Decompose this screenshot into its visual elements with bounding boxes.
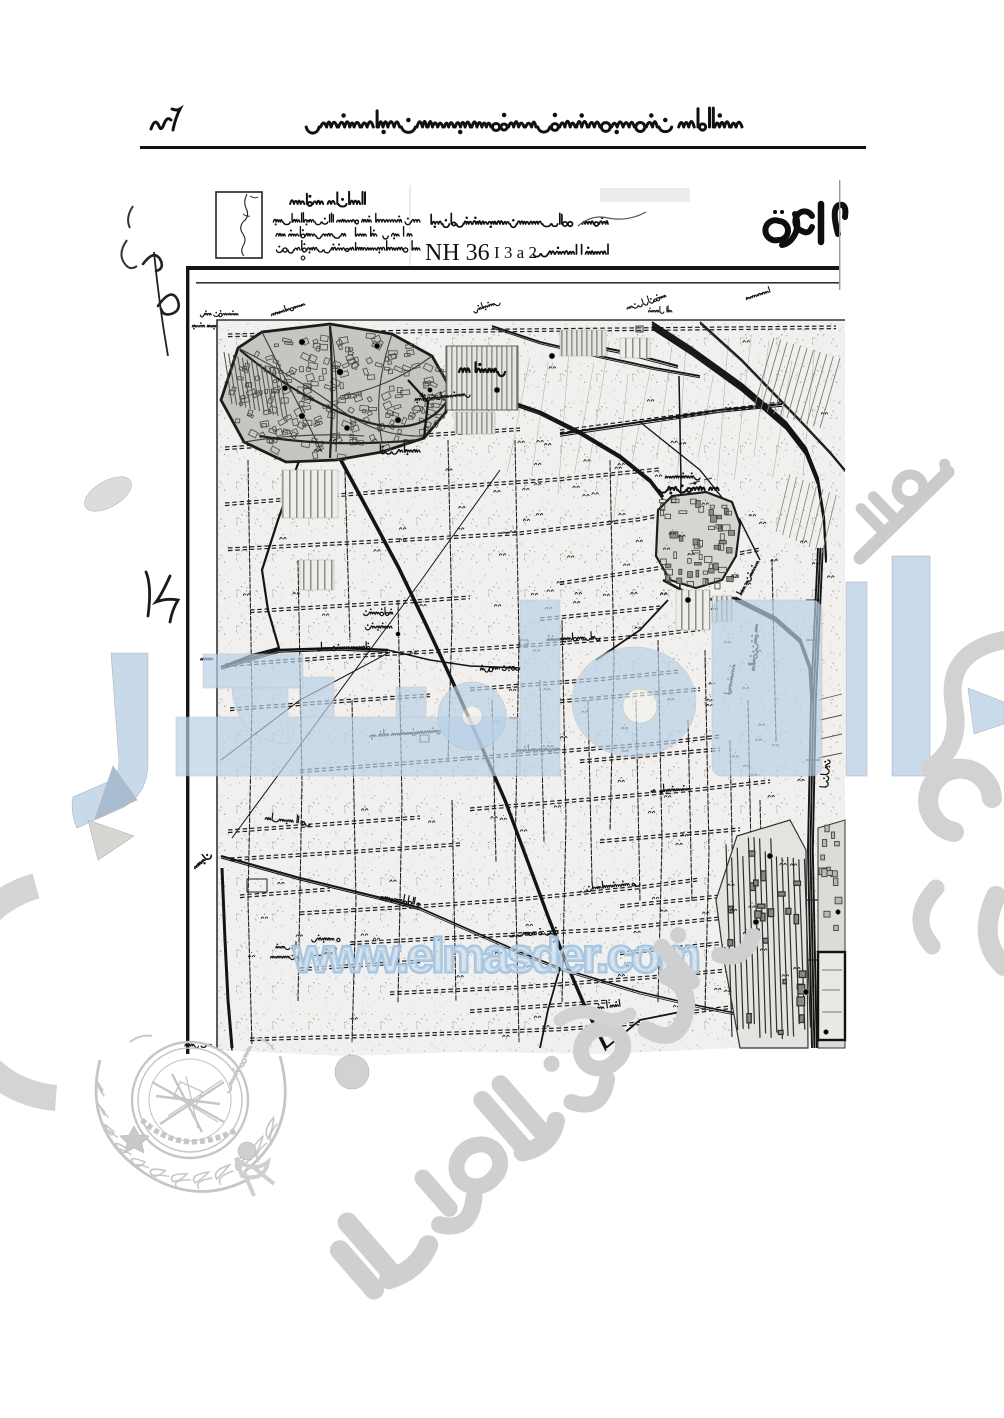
svg-text:www.elmasder.com: www.elmasder.com: [292, 930, 698, 983]
svg-text:I 3 a 2: I 3 a 2: [494, 243, 537, 262]
svg-text:NH 36: NH 36: [425, 240, 490, 266]
